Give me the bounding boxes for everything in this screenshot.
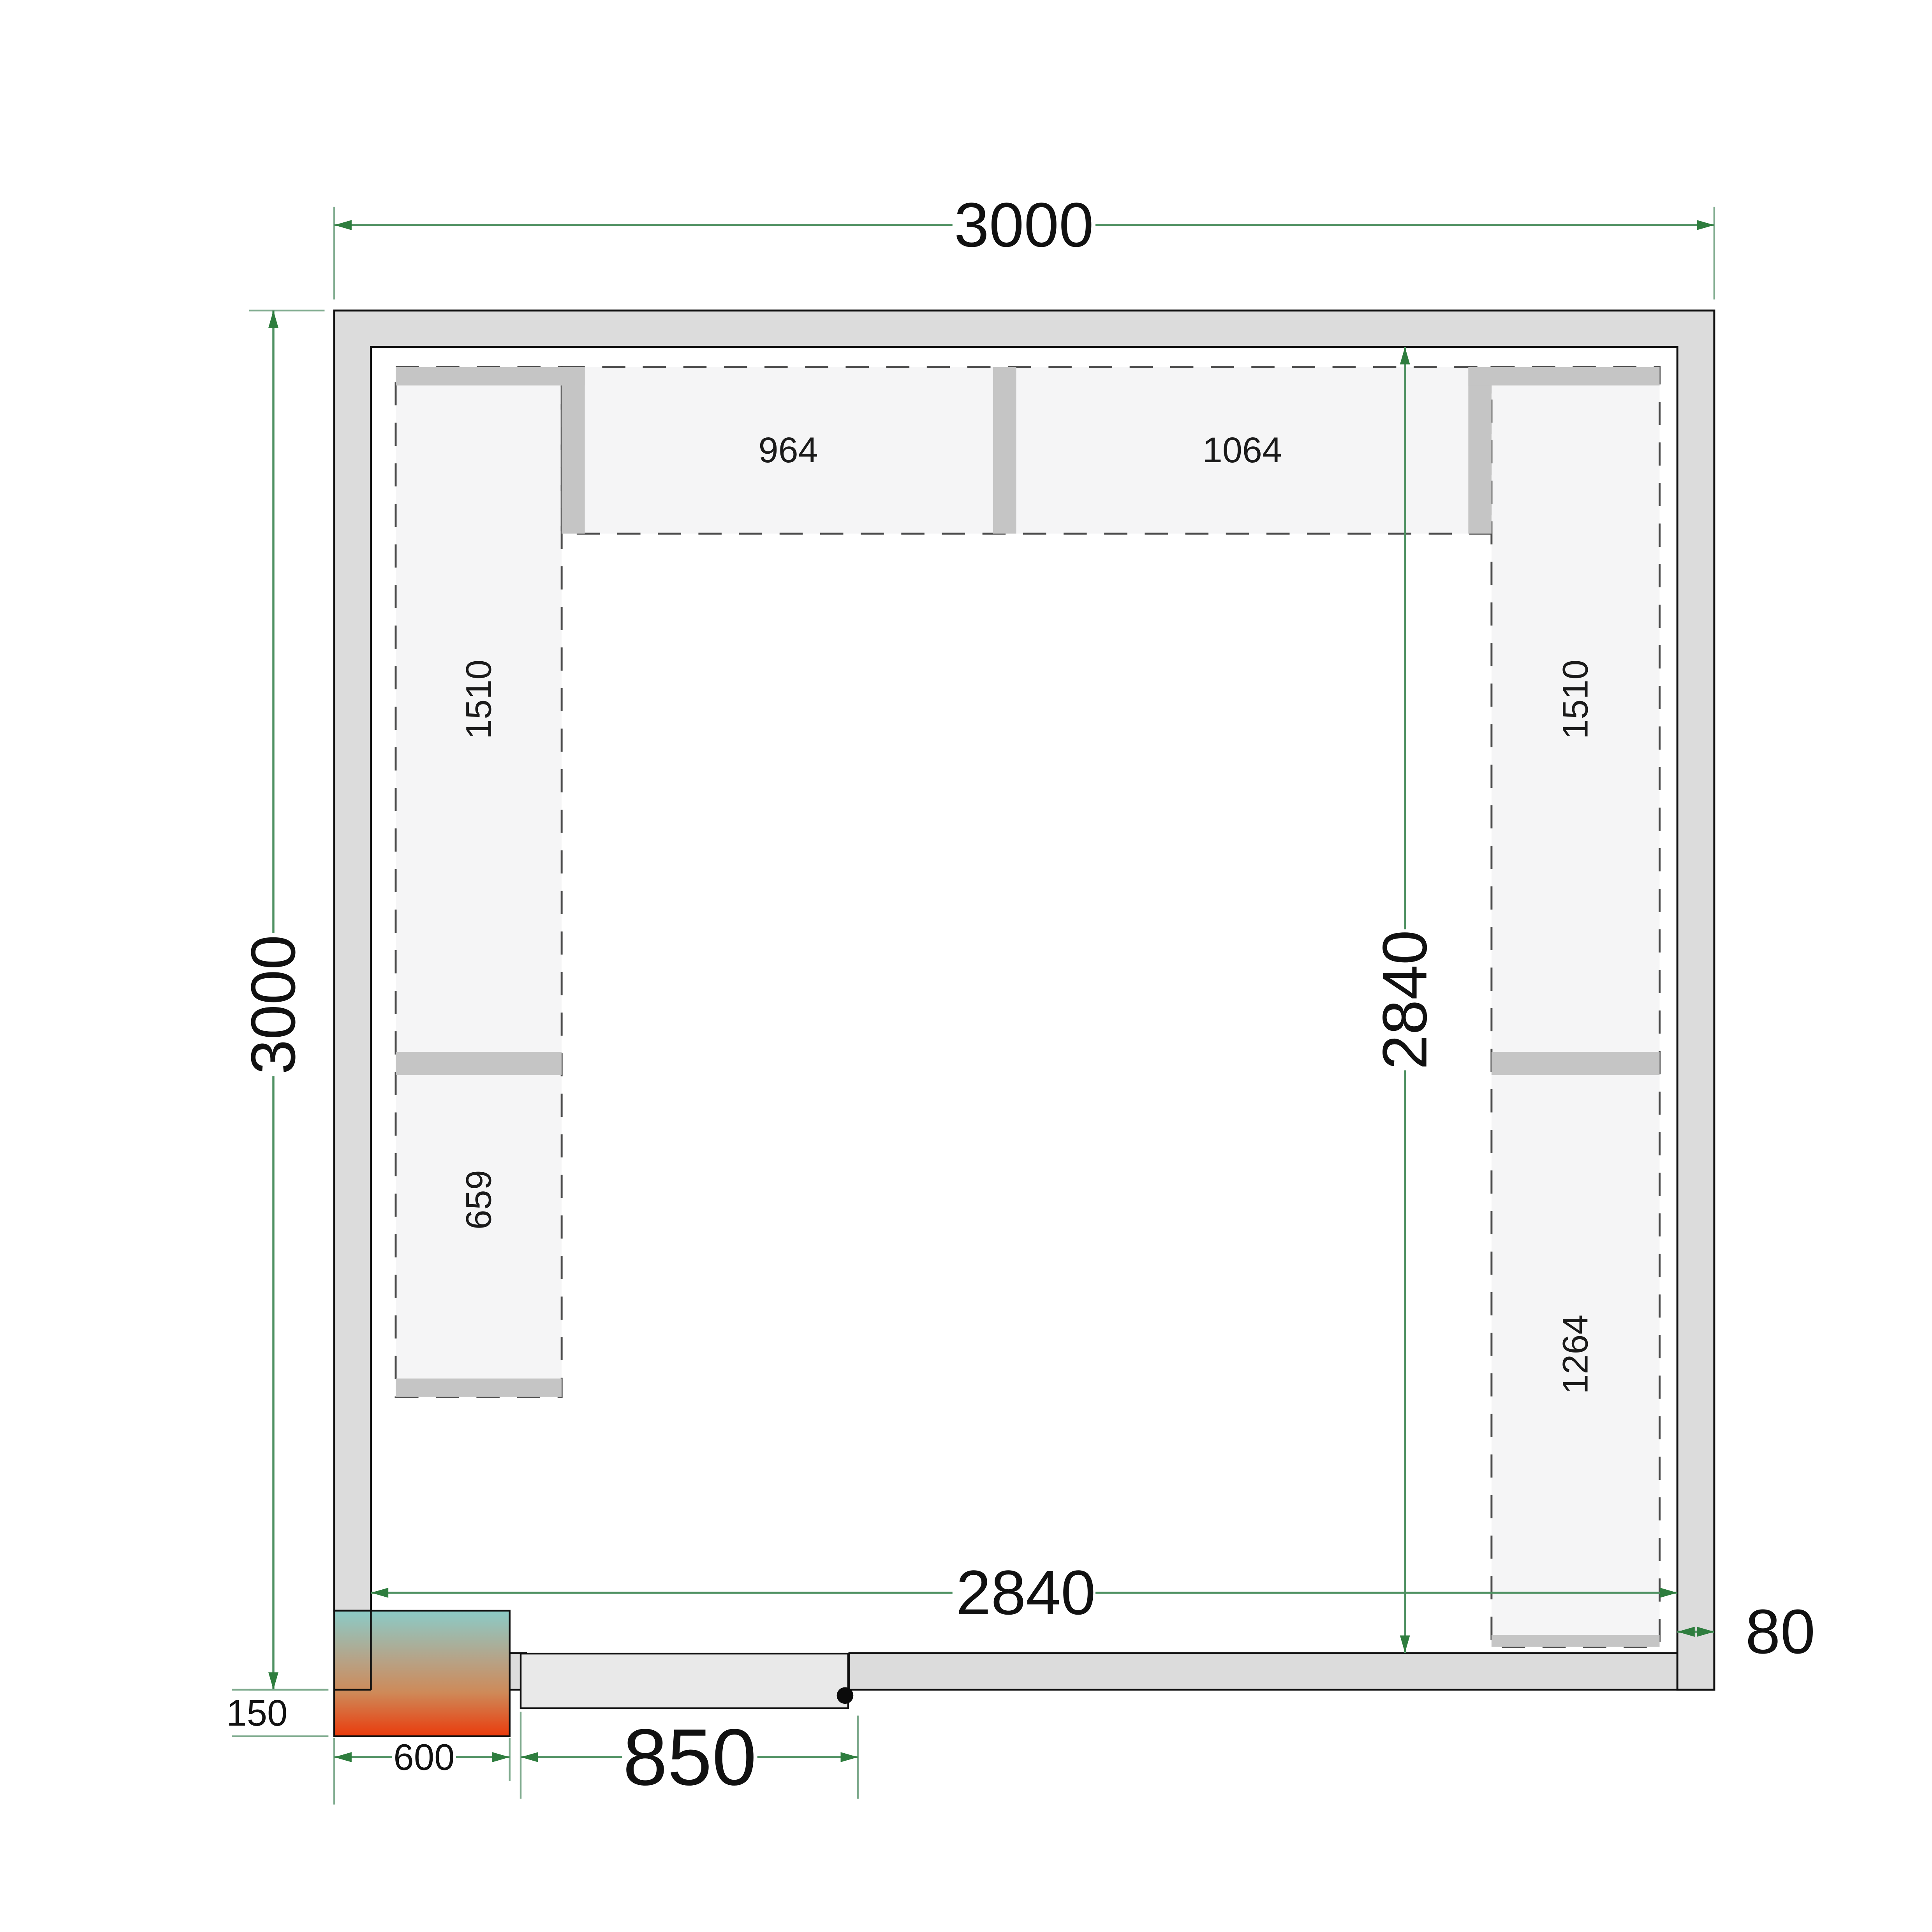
shelving: 1510 659 964 1064 1510 1264	[396, 367, 1659, 1647]
interior-width-value: 2840	[956, 1558, 1096, 1628]
right-shelf-top-bar	[1468, 367, 1659, 386]
left-shelf-end-bar	[396, 1379, 562, 1397]
arrow-left-icon	[371, 1588, 389, 1598]
top-shelf-divider-bar	[993, 367, 1016, 534]
arrow-up-icon	[1400, 347, 1410, 365]
top-shelf	[562, 367, 1492, 534]
door-leaf	[521, 1654, 848, 1708]
right-shelf-divider-bar	[1492, 1052, 1660, 1075]
overall-height-value: 3000	[238, 935, 308, 1074]
dim-interior-height: 2840	[1370, 347, 1440, 1653]
left-shelf-lower-label: 659	[459, 1170, 498, 1229]
cooling-unit-body	[334, 1611, 509, 1736]
left-corner-bar	[562, 367, 585, 534]
wall-thickness-value: 80	[1745, 1597, 1815, 1667]
left-shelf	[396, 367, 562, 1397]
dim-overall-width: 3000	[334, 190, 1714, 299]
arrow-down-icon	[1400, 1635, 1410, 1653]
left-shelf-top-bar	[396, 367, 585, 386]
arrow-right-icon	[1660, 1588, 1677, 1598]
arrow-right-icon	[1697, 220, 1714, 230]
left-shelf-upper-label: 1510	[459, 660, 498, 739]
right-shelf-upper-label: 1510	[1556, 660, 1596, 739]
arrow-left-icon	[334, 220, 352, 230]
arrow-right-icon	[841, 1752, 858, 1762]
arrow-left-icon	[521, 1752, 538, 1762]
arrow-up-icon	[268, 310, 278, 328]
door-hinge-dot	[837, 1687, 854, 1704]
floor-plan-drawing: 1510 659 964 1064 1510 1264 3000 3000 28…	[0, 0, 1932, 1932]
arrow-right-icon	[492, 1752, 510, 1762]
right-shelf-bottom-bar	[1492, 1635, 1660, 1647]
dim-door-width: 850	[521, 1712, 858, 1802]
unit-offset-value: 150	[226, 1692, 287, 1733]
right-shelf-lower-label: 1264	[1556, 1315, 1596, 1394]
left-shelf-divider-bar	[396, 1052, 562, 1075]
top-shelf-left-label: 964	[759, 430, 818, 470]
cooling-unit	[334, 1611, 509, 1736]
arrow-left-icon	[334, 1752, 352, 1762]
dim-unit-offset: 150	[226, 1690, 328, 1737]
bottom-wall-segment	[849, 1653, 1714, 1690]
dim-interior-width: 2840	[371, 1558, 1678, 1628]
floor-plan-svg: 1510 659 964 1064 1510 1264 3000 3000 28…	[0, 0, 1932, 1932]
interior-height-value: 2840	[1370, 930, 1440, 1070]
dim-overall-height: 3000	[238, 310, 324, 1690]
arrow-down-icon	[268, 1672, 278, 1690]
right-shelf	[1492, 367, 1660, 1647]
right-corner-bar	[1468, 367, 1492, 534]
top-shelf-right-label: 1064	[1203, 430, 1282, 470]
door-width-value: 850	[623, 1712, 757, 1802]
overall-width-value: 3000	[954, 190, 1094, 260]
unit-width-value: 600	[393, 1737, 454, 1778]
dim-unit-width: 600	[334, 1737, 509, 1805]
